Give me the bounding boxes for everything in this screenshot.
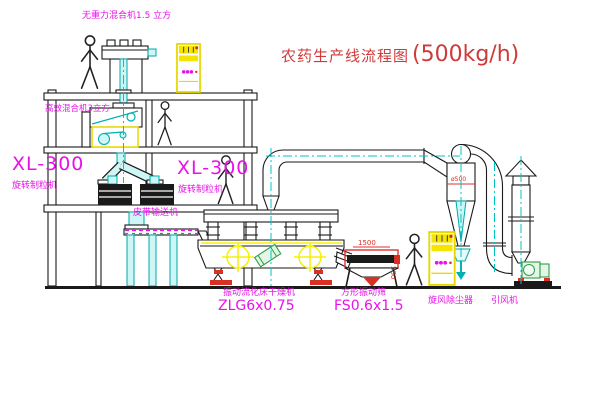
person-floor2 — [158, 102, 171, 145]
control-cabinet-1 — [177, 44, 200, 92]
label-cyclone: 旋风除尘器 — [428, 297, 473, 306]
belt-conveyor — [124, 229, 214, 286]
label-high-mixer: 高效混合机3立方 — [45, 105, 110, 114]
dim-screen-height: 580 — [389, 266, 396, 279]
dryer-spring-support-left — [210, 268, 232, 285]
label-dryer-model: ZLG6x0.75 — [218, 299, 295, 313]
label-granulator-right-model: XL-300 — [177, 159, 249, 178]
drawing-title: 农药生产线流程图 (500kg/h) — [281, 42, 519, 67]
label-belt-conveyor: 皮带输送机 — [133, 209, 178, 218]
label-screen-name: 方形振动筛 — [341, 289, 386, 298]
main-exhaust-duct — [263, 148, 447, 210]
dim-screen-length: 1500 — [358, 240, 376, 247]
title-capacity: (500kg/h) — [412, 42, 519, 67]
dryer-exhaust-stubs — [206, 222, 332, 240]
label-dryer-name: 振动流化床干燥机 — [223, 289, 295, 298]
label-gravity-mixer: 无重力混合机1.5 立方 — [82, 12, 171, 21]
fluid-bed-dryer — [198, 210, 352, 285]
person-roof — [82, 36, 98, 88]
cad-flowsheet-canvas: 农药生产线流程图 (500kg/h) 无重力混合机1.5 立方 高效混合机3立方… — [0, 0, 600, 403]
label-granulator-right-name: 旋转制粒机 — [178, 186, 223, 195]
ground-line — [45, 286, 561, 289]
control-cabinet-2 — [429, 232, 454, 285]
label-granulator-left-name: 旋转制粒机 — [12, 182, 57, 191]
label-screen-model: FS0.6x1.5 — [334, 299, 404, 313]
title-text: 农药生产线流程图 — [281, 45, 409, 66]
label-fan: 引风机 — [491, 297, 518, 306]
dryer-spring-support-right — [310, 268, 332, 285]
person-ground — [406, 234, 421, 284]
dim-cyclone-diameter: ø500 — [451, 177, 466, 183]
induced-draft-fan — [514, 262, 552, 286]
label-granulator-left-model: XL-300 — [12, 155, 84, 174]
